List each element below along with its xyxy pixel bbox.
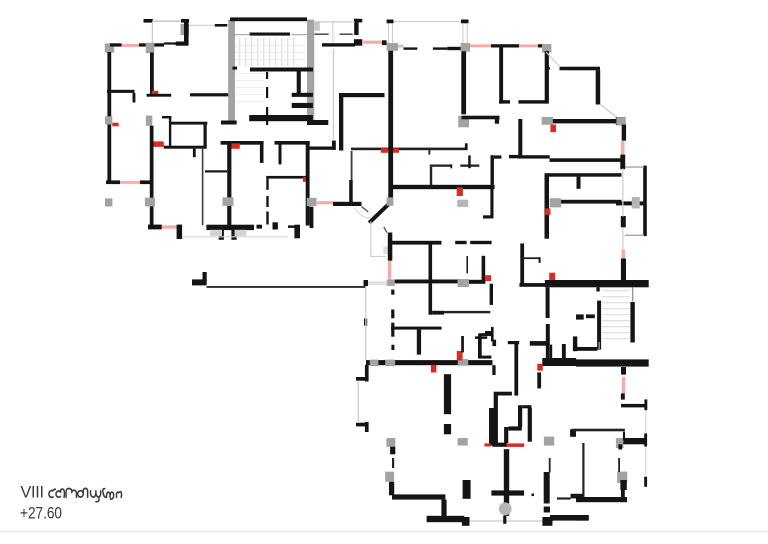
svg-text:+27.60: +27.60 xyxy=(20,505,62,523)
svg-text:VIII: VIII xyxy=(21,484,45,502)
